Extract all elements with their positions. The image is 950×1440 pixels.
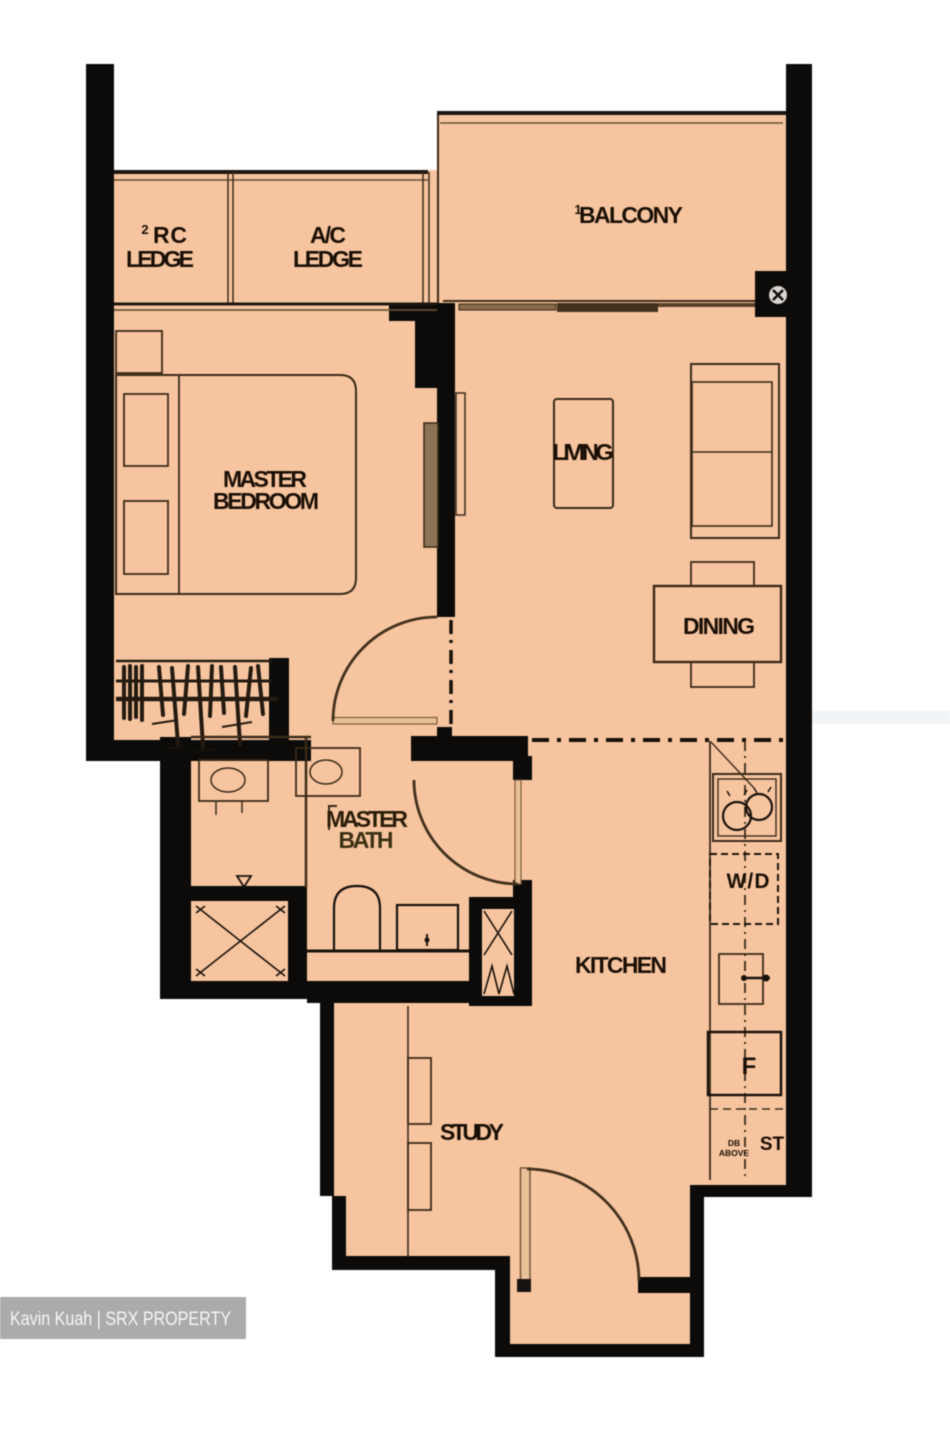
svg-text:F: F bbox=[742, 1053, 757, 1080]
svg-text:BATH: BATH bbox=[339, 827, 394, 853]
svg-text:BEDROOM: BEDROOM bbox=[213, 488, 319, 514]
svg-text:W/D: W/D bbox=[727, 870, 770, 893]
svg-text:A/C: A/C bbox=[310, 222, 346, 248]
svg-text:ST: ST bbox=[760, 1134, 785, 1155]
svg-text:2: 2 bbox=[141, 222, 148, 237]
svg-text:KITCHEN: KITCHEN bbox=[575, 952, 667, 978]
svg-text:DB: DB bbox=[728, 1138, 740, 1148]
svg-text:STUDY: STUDY bbox=[440, 1119, 504, 1145]
svg-text:RC: RC bbox=[153, 222, 187, 248]
svg-text:DINING: DINING bbox=[683, 613, 755, 639]
svg-text:LIVING: LIVING bbox=[553, 439, 614, 465]
svg-text:Kavin Kuah | SRX PROPERTY: Kavin Kuah | SRX PROPERTY bbox=[10, 1309, 231, 1330]
svg-text:LEDGE: LEDGE bbox=[126, 246, 194, 272]
svg-text:BALCONY: BALCONY bbox=[579, 202, 683, 228]
svg-text:LEDGE: LEDGE bbox=[293, 246, 363, 272]
svg-text:ABOVE: ABOVE bbox=[719, 1148, 750, 1158]
